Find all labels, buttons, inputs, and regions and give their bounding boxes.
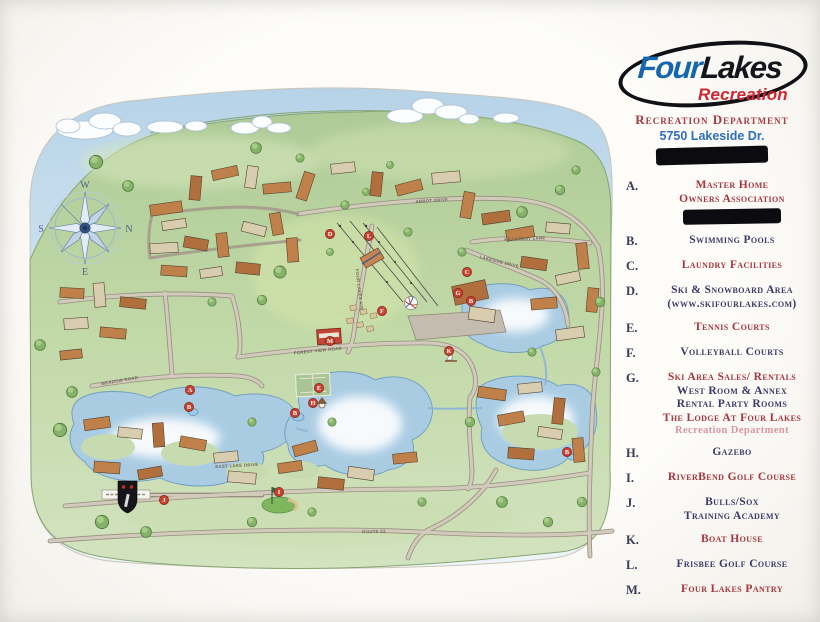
- legend-key: A.: [614, 179, 650, 224]
- map-marker-a: A: [185, 385, 194, 394]
- legend-label: Laundry Facilities: [650, 259, 814, 273]
- marker-letter: H: [311, 400, 316, 407]
- marker-letter: G: [456, 290, 461, 297]
- marker-letter: A: [188, 387, 193, 394]
- marker-letter: K: [447, 348, 452, 355]
- street-label: Route 53: [362, 529, 386, 535]
- legend-label: Owners Association: [650, 193, 814, 207]
- map-marker-g: G: [453, 288, 462, 297]
- tennis-courts: [295, 373, 330, 397]
- scanned-resort-map-page: WSNE Abbot DriveHillcrest LaneLakeside D…: [0, 0, 820, 622]
- logo-word-recreation: Recreation: [698, 85, 788, 105]
- legend-item-g: G.Ski Area Sales/ RentalsWest Room & Ann…: [614, 371, 814, 436]
- marker-letter: B: [187, 404, 192, 411]
- legend-key: F.: [614, 346, 650, 361]
- legend-item-k: K.Boat House: [614, 533, 814, 548]
- legend-item-i: I.RiverBend Golf Course: [614, 471, 814, 486]
- map-marker-d: D: [325, 229, 334, 238]
- logo-wordmark: FourLakes: [637, 50, 783, 86]
- legend-label: Volleyball Courts: [650, 346, 814, 360]
- map-marker-b: B: [290, 408, 299, 417]
- legend-label: Master Home: [650, 179, 814, 193]
- marker-letter: B: [293, 410, 298, 417]
- legend-label: (www.skifourlakes.com): [650, 298, 814, 312]
- map-marker-e: E: [314, 383, 323, 392]
- marker-letter: B: [469, 298, 474, 305]
- marker-letter: M: [327, 338, 333, 345]
- legend-key: J.: [614, 496, 650, 523]
- map-marker-f: F: [377, 306, 386, 315]
- legend-item-a: A.Master HomeOwners Association: [614, 179, 814, 224]
- map-marker-m: M: [325, 336, 334, 345]
- legend-key: I.: [614, 471, 650, 486]
- legend-label: RiverBend Golf Course: [650, 471, 814, 485]
- legend-key: H.: [614, 446, 650, 461]
- legend-item-c: C.Laundry Facilities: [614, 259, 814, 274]
- map-marker-l: L: [364, 231, 373, 240]
- map-marker-i: I: [274, 487, 283, 496]
- legend-label: Tennis Courts: [650, 321, 814, 335]
- legend-item-m: M.Four Lakes Pantry: [614, 583, 814, 598]
- legend-item-h: H.Gazebo: [614, 446, 814, 461]
- compass-point-label: E: [82, 267, 88, 278]
- legend-key: E.: [614, 321, 650, 336]
- redacted-text: [683, 208, 781, 225]
- legend-label: Rental Party Rooms: [650, 398, 814, 412]
- logo-word-four: Four: [637, 50, 702, 85]
- map-marker-c: C: [462, 267, 471, 276]
- legend-label: Ski & Snowboard Area: [650, 284, 814, 298]
- legend-item-l: L.Frisbee Golf Course: [614, 558, 814, 573]
- legend-item-d: D.Ski & Snowboard Area(www.skifourlakes.…: [614, 284, 814, 311]
- department-title: Recreation Department: [612, 112, 812, 128]
- legend-label: Training Academy: [650, 510, 814, 524]
- compass-point-label: S: [38, 224, 44, 235]
- volleyball-icon: [405, 296, 418, 310]
- legend-label: Swimming Pools: [650, 234, 814, 248]
- marker-letter: B: [565, 449, 570, 456]
- legend-item-e: E.Tennis Courts: [614, 321, 814, 336]
- four-lakes-logo: FourLakes Recreation: [612, 28, 817, 116]
- legend-key: C.: [614, 259, 650, 274]
- marker-letter: C: [465, 269, 470, 276]
- legend-label: West Room & Annex: [650, 385, 814, 399]
- legend-key: G.: [614, 371, 650, 436]
- legend-label: Recreation Department: [650, 425, 814, 436]
- map-marker-b: B: [466, 296, 475, 305]
- map-marker-k: K: [444, 346, 453, 355]
- legend-label: The Lodge At Four Lakes: [650, 412, 814, 426]
- legend-key: M.: [614, 583, 650, 598]
- logo-word-lakes: Lakes: [700, 50, 783, 85]
- marker-letter: L: [367, 233, 371, 240]
- department-address-block: Recreation Department 5750 Lakeside Dr.: [612, 112, 812, 164]
- department-address: 5750 Lakeside Dr.: [612, 129, 812, 143]
- legend-label: Bulls/Sox: [650, 496, 814, 510]
- map-legend: A.Master HomeOwners AssociationB.Swimmin…: [614, 179, 814, 608]
- map-marker-b: B: [184, 402, 193, 411]
- map-marker-j: J: [159, 495, 168, 504]
- compass-point-label: W: [80, 180, 90, 191]
- marker-letter: D: [328, 231, 333, 238]
- legend-key: D.: [614, 284, 650, 311]
- marker-letter: E: [317, 385, 321, 392]
- legend-item-j: J.Bulls/SoxTraining Academy: [614, 496, 814, 523]
- legend-label: Ski Area Sales/ Rentals: [650, 371, 814, 385]
- resort-map-illustration: WSNE Abbot DriveHillcrest LaneLakeside D…: [0, 0, 620, 622]
- compass-point-label: N: [125, 224, 132, 235]
- legend-label: Frisbee Golf Course: [650, 558, 814, 572]
- map-marker-h: H: [308, 398, 317, 407]
- redacted-text: [656, 146, 768, 166]
- legend-key: K.: [614, 533, 650, 548]
- legend-item-b: B.Swimming Pools: [614, 234, 814, 249]
- legend-label: Four Lakes Pantry: [650, 583, 814, 597]
- marker-letter: F: [380, 308, 384, 315]
- map-marker-b: B: [562, 447, 571, 456]
- legend-key: L.: [614, 558, 650, 573]
- legend-item-f: F.Volleyball Courts: [614, 346, 814, 361]
- legend-key: B.: [614, 234, 650, 249]
- legend-label: Gazebo: [650, 446, 814, 460]
- legend-label: Boat House: [650, 533, 814, 547]
